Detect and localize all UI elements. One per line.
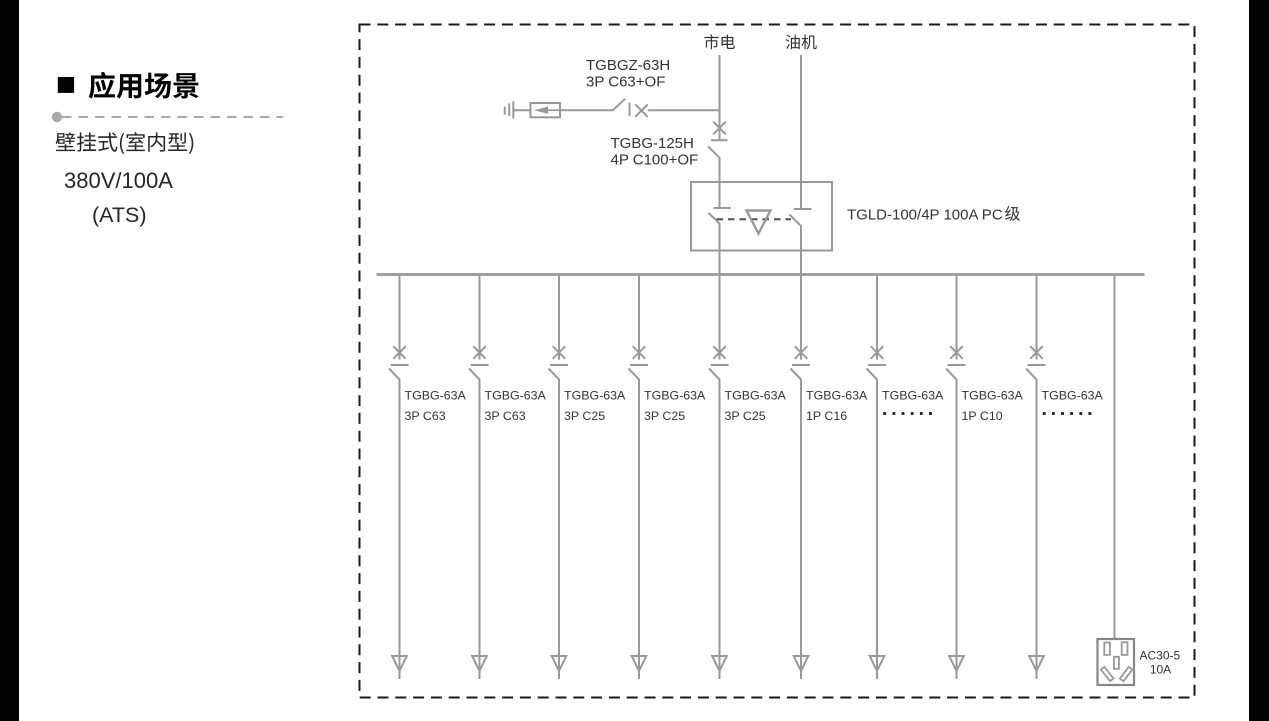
svg-text:TGBG-63A: TGBG-63A [644, 389, 706, 403]
svg-text:1P C16: 1P C16 [806, 409, 847, 423]
svg-text:TGBG-63A: TGBG-63A [882, 389, 944, 403]
svg-text:(ATS): (ATS) [92, 203, 147, 227]
svg-text:4P C100+OF: 4P C100+OF [611, 152, 699, 169]
svg-text:3P C63: 3P C63 [405, 409, 446, 423]
svg-text:3P C25: 3P C25 [564, 409, 605, 423]
svg-text:TGBG-63A: TGBG-63A [1042, 389, 1104, 403]
svg-text:TGBG-63A: TGBG-63A [564, 389, 626, 403]
svg-text:TGBGZ-63H: TGBGZ-63H [586, 57, 670, 74]
svg-text:AC30-5: AC30-5 [1140, 649, 1181, 663]
svg-text:TGBG-63A: TGBG-63A [405, 389, 467, 403]
svg-text:TGBG-63A: TGBG-63A [485, 389, 547, 403]
svg-text:TGLD-100/4P 100A PC: TGLD-100/4P 100A PC [847, 207, 1003, 224]
svg-text:3P C63+OF: 3P C63+OF [586, 74, 665, 91]
svg-text:3P C25: 3P C25 [644, 409, 685, 423]
svg-text:380V/100A: 380V/100A [64, 168, 173, 193]
svg-text:3P C25: 3P C25 [725, 409, 766, 423]
svg-text:1P C10: 1P C10 [962, 409, 1003, 423]
svg-text:TGBG-125H: TGBG-125H [611, 135, 694, 152]
svg-text:3P C63: 3P C63 [485, 409, 526, 423]
svg-text:TGBG-63A: TGBG-63A [962, 389, 1024, 403]
svg-text:TGBG-63A: TGBG-63A [806, 389, 868, 403]
svg-text:TGBG-63A: TGBG-63A [725, 389, 787, 403]
svg-text:10A: 10A [1150, 663, 1171, 677]
